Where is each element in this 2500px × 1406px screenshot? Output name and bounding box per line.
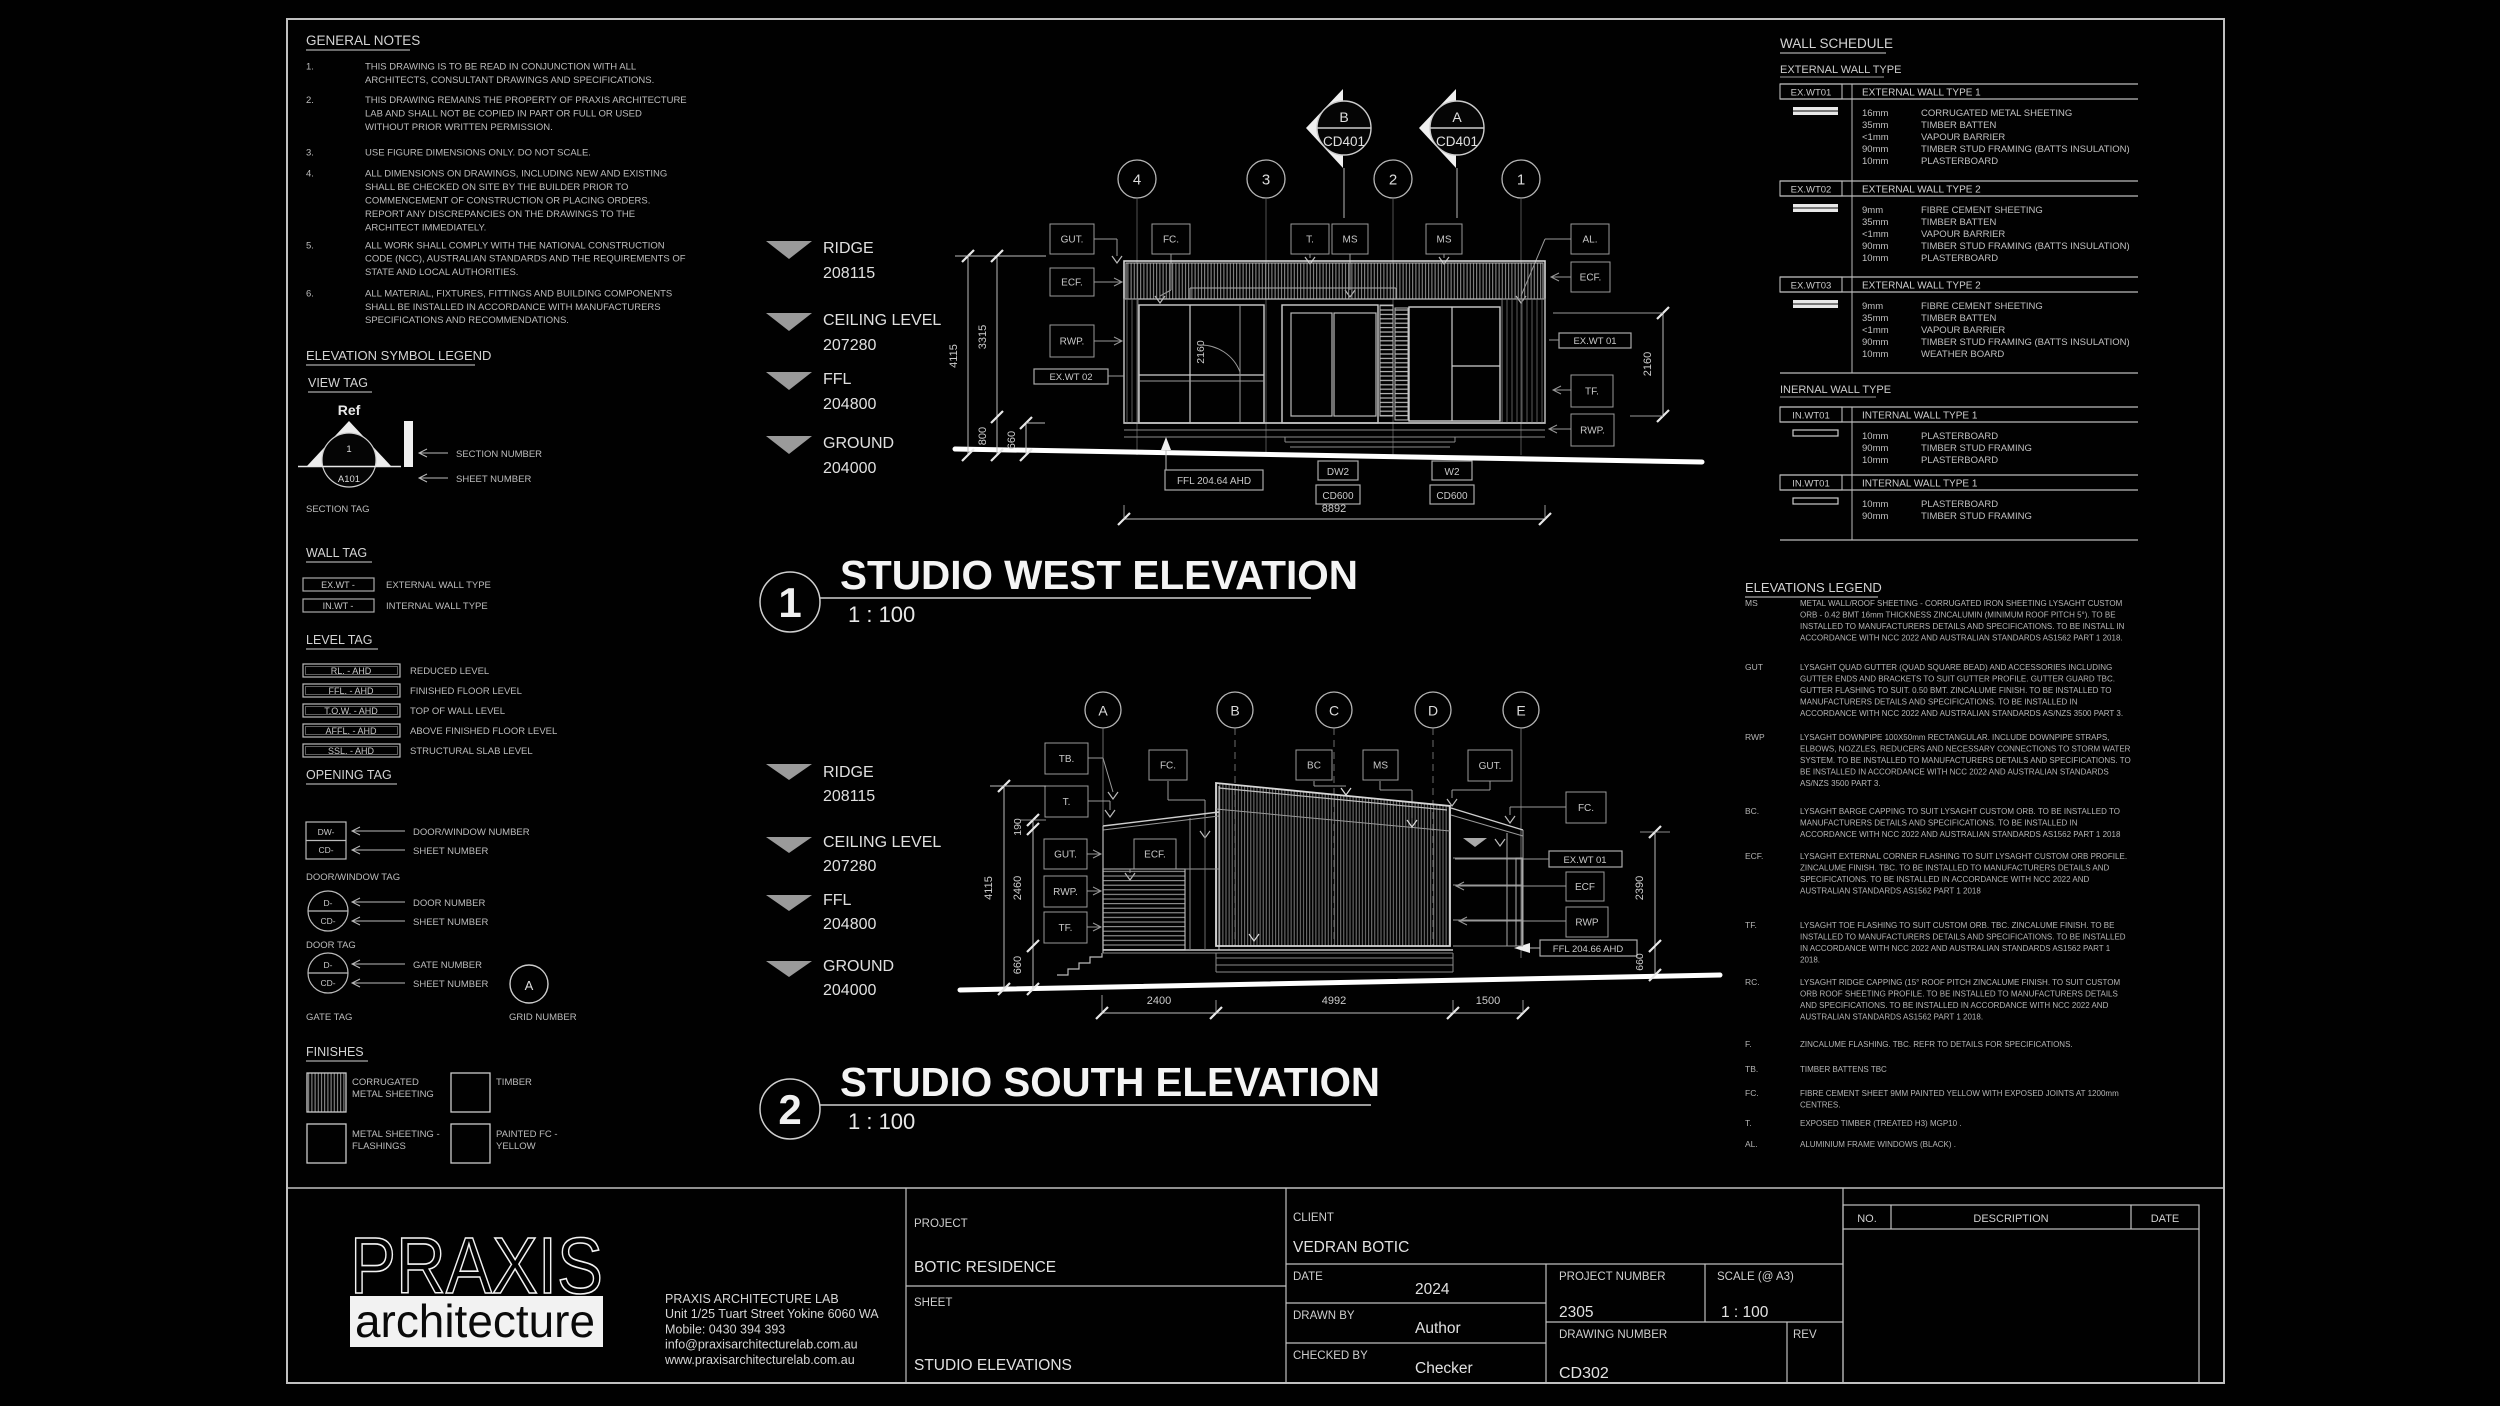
svg-text:SPECIFICATIONS AND RECOMMENDAT: SPECIFICATIONS AND RECOMMENDATIONS.: [365, 315, 569, 326]
svg-text:RWP: RWP: [1745, 732, 1765, 742]
svg-text:EX.WT01: EX.WT01: [1791, 88, 1832, 99]
svg-text:REV: REV: [1793, 1329, 1817, 1341]
svg-text:EXTERNAL WALL TYPE 1: EXTERNAL WALL TYPE 1: [1862, 88, 1981, 99]
svg-text:90mm: 90mm: [1862, 241, 1888, 252]
svg-text:CENTRES.: CENTRES.: [1800, 1101, 1840, 1110]
svg-text:EXTERNAL WALL TYPE 2: EXTERNAL WALL TYPE 2: [1862, 281, 1981, 292]
svg-text:4115: 4115: [948, 344, 960, 368]
svg-text:LYSAGHT TOE FLASHING TO SUIT C: LYSAGHT TOE FLASHING TO SUIT CUSTOM ORB.…: [1800, 921, 2114, 930]
svg-text:www.praxisarchitecturelab.com.: www.praxisarchitecturelab.com.au: [664, 1353, 855, 1367]
svg-text:CD-: CD-: [320, 916, 335, 926]
svg-text:LYSAGHT EXTERNAL CORNER FLASHI: LYSAGHT EXTERNAL CORNER FLASHING TO SUIT…: [1800, 852, 2127, 861]
svg-text:204800: 204800: [823, 396, 876, 413]
svg-text:90mm: 90mm: [1862, 144, 1888, 155]
svg-text:2: 2: [778, 1086, 801, 1133]
svg-text:RIDGE: RIDGE: [823, 240, 874, 257]
svg-text:LAB AND SHALL NOT BE COPIED IN: LAB AND SHALL NOT BE COPIED IN PART OR F…: [365, 108, 642, 119]
svg-text:FC.: FC.: [1160, 761, 1176, 772]
svg-text:COMMENCEMENT OF CONSTRUCTION O: COMMENCEMENT OF CONSTRUCTION OR PLACING …: [365, 196, 650, 207]
svg-text:INTERNAL WALL TYPE 1: INTERNAL WALL TYPE 1: [1862, 411, 1978, 422]
svg-text:660: 660: [1012, 956, 1024, 974]
svg-text:IN.WT01: IN.WT01: [1792, 411, 1829, 422]
svg-text:<1mm: <1mm: [1862, 325, 1889, 336]
svg-text:STUDIO WEST ELEVATION: STUDIO WEST ELEVATION: [840, 552, 1358, 598]
svg-text:WALL SCHEDULE: WALL SCHEDULE: [1780, 36, 1893, 51]
svg-text:FIBRE CEMENT SHEETING: FIBRE CEMENT SHEETING: [1921, 301, 2043, 312]
svg-text:Unit 1/25 Tuart Street Yokine: Unit 1/25 Tuart Street Yokine 6060 WA: [665, 1307, 879, 1321]
svg-text:D: D: [1428, 703, 1438, 719]
svg-text:FFL. - AHD: FFL. - AHD: [328, 686, 374, 696]
svg-text:DATE: DATE: [2151, 1213, 2180, 1225]
svg-text:9mm: 9mm: [1862, 301, 1883, 312]
svg-text:CEILING LEVEL: CEILING LEVEL: [823, 834, 941, 851]
svg-text:10mm: 10mm: [1862, 253, 1888, 264]
svg-text:STUDIO ELEVATIONS: STUDIO ELEVATIONS: [914, 1357, 1072, 1374]
svg-text:TIMBER BATTENS TBC: TIMBER BATTENS TBC: [1800, 1065, 1887, 1074]
svg-text:35mm: 35mm: [1862, 120, 1888, 131]
svg-text:10mm: 10mm: [1862, 349, 1888, 360]
svg-text:VAPOUR BARRIER: VAPOUR BARRIER: [1921, 229, 2005, 240]
svg-text:ACCORDANCE WITH NCC 2022 AND A: ACCORDANCE WITH NCC 2022 AND AUSTRALIAN …: [1800, 830, 2121, 839]
svg-text:LYSAGHT RIDGE CAPPING (15° ROO: LYSAGHT RIDGE CAPPING (15° ROOF PITCH ZI…: [1800, 978, 2120, 987]
svg-text:AL.: AL.: [1582, 235, 1597, 246]
svg-text:IN.WT01: IN.WT01: [1792, 479, 1829, 490]
svg-text:LYSAGHT QUAD GUTTER (QUAD SQUA: LYSAGHT QUAD GUTTER (QUAD SQUARE BEAD) A…: [1800, 663, 2112, 672]
svg-text:FIBRE CEMENT SHEETING: FIBRE CEMENT SHEETING: [1921, 205, 2043, 216]
svg-text:ORB ROOF SHEETING PROFILE. TO: ORB ROOF SHEETING PROFILE. TO BE INSTALL…: [1800, 990, 2118, 999]
svg-text:FINISHES: FINISHES: [306, 1045, 364, 1059]
svg-text:AS/NZS 3500 PART 3.: AS/NZS 3500 PART 3.: [1800, 779, 1880, 788]
svg-text:208115: 208115: [823, 265, 875, 282]
svg-text:204000: 204000: [823, 460, 876, 477]
svg-text:EX.WT 02: EX.WT 02: [1049, 372, 1092, 383]
svg-text:TIMBER BATTEN: TIMBER BATTEN: [1921, 313, 1996, 324]
svg-text:TIMBER STUD FRAMING: TIMBER STUD FRAMING: [1921, 443, 2032, 454]
svg-text:204800: 204800: [823, 916, 876, 933]
svg-text:CD302: CD302: [1559, 1365, 1609, 1382]
svg-text:REPORT ANY DISCREPANCIES ON TH: REPORT ANY DISCREPANCIES ON THE DRAWINGS…: [365, 209, 635, 220]
svg-text:T.: T.: [1063, 797, 1071, 808]
svg-text:TOP OF WALL LEVEL: TOP OF WALL LEVEL: [410, 706, 505, 717]
svg-text:BOTIC RESIDENCE: BOTIC RESIDENCE: [914, 1259, 1056, 1276]
svg-text:TIMBER BATTEN: TIMBER BATTEN: [1921, 217, 1996, 228]
svg-text:2400: 2400: [1147, 995, 1171, 1007]
svg-text:1 : 100: 1 : 100: [848, 1109, 915, 1134]
svg-text:RWP: RWP: [1575, 918, 1598, 929]
svg-text:VAPOUR BARRIER: VAPOUR BARRIER: [1921, 132, 2005, 143]
svg-text:VEDRAN BOTIC: VEDRAN BOTIC: [1293, 1239, 1409, 1256]
svg-text:BC: BC: [1307, 761, 1321, 772]
svg-text:Author: Author: [1415, 1320, 1461, 1337]
svg-text:ARCHITECTS, CONSULTANT DRAWING: ARCHITECTS, CONSULTANT DRAWINGS AND SPEC…: [365, 75, 654, 86]
svg-text:3.: 3.: [306, 148, 314, 159]
svg-text:2305: 2305: [1559, 1304, 1593, 1321]
svg-text:EX.WT 01: EX.WT 01: [1573, 336, 1616, 347]
svg-text:PLASTERBOARD: PLASTERBOARD: [1921, 253, 1998, 264]
svg-text:TIMBER: TIMBER: [496, 1077, 532, 1088]
svg-text:4992: 4992: [1322, 995, 1346, 1007]
svg-text:WALL TAG: WALL TAG: [306, 546, 367, 560]
svg-text:GATE TAG: GATE TAG: [306, 1012, 352, 1023]
svg-text:MS: MS: [1437, 235, 1452, 246]
svg-text:SHEET NUMBER: SHEET NUMBER: [413, 979, 488, 990]
svg-text:PAINTED FC -: PAINTED FC -: [496, 1129, 558, 1140]
svg-text:STATE AND LOCAL AUTHORITIES.: STATE AND LOCAL AUTHORITIES.: [365, 267, 518, 278]
svg-text:RWP.: RWP.: [1053, 887, 1078, 898]
svg-text:CD401: CD401: [1323, 134, 1365, 149]
svg-text:CD-: CD-: [318, 845, 333, 855]
svg-text:207280: 207280: [823, 337, 876, 354]
svg-text:2160: 2160: [1195, 340, 1207, 364]
svg-text:GATE NUMBER: GATE NUMBER: [413, 960, 482, 971]
svg-text:STRUCTURAL SLAB LEVEL: STRUCTURAL SLAB LEVEL: [410, 746, 533, 757]
svg-text:CODE (NCC), AUSTRALIAN STANDAR: CODE (NCC), AUSTRALIAN STANDARDS AND THE…: [365, 254, 686, 265]
svg-text:FC.: FC.: [1163, 235, 1179, 246]
svg-text:DOOR TAG: DOOR TAG: [306, 940, 356, 951]
svg-text:TIMBER STUD FRAMING: TIMBER STUD FRAMING: [1921, 511, 2032, 522]
svg-text:BC.: BC.: [1745, 806, 1759, 816]
svg-text:USE FIGURE DIMENSIONS ONLY. DO: USE FIGURE DIMENSIONS ONLY. DO NOT SCALE…: [365, 148, 591, 159]
svg-text:architecture: architecture: [355, 1295, 595, 1347]
svg-text:ACCORDANCE WITH NCC 2022 AND A: ACCORDANCE WITH NCC 2022 AND AUSTRALIAN …: [1800, 709, 2123, 718]
svg-text:W2: W2: [1445, 467, 1460, 478]
svg-text:CORRUGATED METAL SHEETING: CORRUGATED METAL SHEETING: [1921, 108, 2072, 119]
svg-text:1: 1: [346, 444, 351, 455]
svg-text:16mm: 16mm: [1862, 108, 1888, 119]
svg-text:ELBOWS, NOZZLES, REDUCERS AND: ELBOWS, NOZZLES, REDUCERS AND NECESSARY …: [1800, 745, 2131, 754]
svg-text:SSL. - AHD: SSL. - AHD: [328, 746, 375, 756]
svg-text:INTERNAL WALL TYPE 1: INTERNAL WALL TYPE 1: [1862, 479, 1978, 490]
svg-text:T.: T.: [1745, 1118, 1752, 1128]
svg-text:1: 1: [778, 579, 801, 626]
svg-text:THIS DRAWING IS TO BE READ IN: THIS DRAWING IS TO BE READ IN CONJUNCTIO…: [365, 62, 636, 73]
svg-text:THIS DRAWING REMAINS THE PROPE: THIS DRAWING REMAINS THE PROPERTY OF PRA…: [365, 95, 687, 106]
svg-text:LYSAGHT BARGE CAPPING TO SUIT: LYSAGHT BARGE CAPPING TO SUIT LYSAGHT CU…: [1800, 807, 2120, 816]
svg-text:4115: 4115: [983, 876, 995, 900]
svg-text:A101: A101: [338, 474, 360, 485]
svg-text:90mm: 90mm: [1862, 337, 1888, 348]
svg-text:T.O.W. - AHD: T.O.W. - AHD: [324, 706, 378, 716]
svg-text:WITHOUT PRIOR WRITTEN PERMISSI: WITHOUT PRIOR WRITTEN PERMISSION.: [365, 122, 553, 133]
svg-text:D-: D-: [324, 960, 333, 970]
svg-text:10mm: 10mm: [1862, 455, 1888, 466]
svg-text:3315: 3315: [977, 325, 989, 349]
svg-text:2.: 2.: [306, 95, 314, 106]
svg-text:A: A: [1452, 109, 1462, 125]
svg-text:INSTALLED TO MANUFACTURERS DET: INSTALLED TO MANUFACTURERS DETAILS AND S…: [1800, 622, 2125, 631]
svg-text:DRAWN BY: DRAWN BY: [1293, 1310, 1355, 1322]
svg-text:204000: 204000: [823, 982, 876, 999]
svg-text:AUSTRALIAN STANDARDS AS1562 PA: AUSTRALIAN STANDARDS AS1562 PART 1 2018: [1800, 887, 1981, 896]
svg-text:TIMBER STUD FRAMING (BATTS INS: TIMBER STUD FRAMING (BATTS INSULATION): [1921, 144, 2130, 155]
svg-text:800: 800: [977, 427, 989, 445]
svg-text:BE INSTALLED IN ACCORDANCE WIT: BE INSTALLED IN ACCORDANCE WITH NCC 2022…: [1800, 768, 2109, 777]
svg-text:10mm: 10mm: [1862, 499, 1888, 510]
svg-text:9mm: 9mm: [1862, 205, 1883, 216]
svg-text:TIMBER BATTEN: TIMBER BATTEN: [1921, 120, 1996, 131]
svg-text:MANUFACTURERS DETAILS AND SPEC: MANUFACTURERS DETAILS AND SPECIFICATIONS…: [1800, 819, 2078, 828]
svg-text:GUTTER FLASHING TO SUIT. 0.50: GUTTER FLASHING TO SUIT. 0.50 BMT. ZINCA…: [1800, 686, 2111, 695]
svg-text:2024: 2024: [1415, 1281, 1450, 1298]
svg-text:MS: MS: [1745, 598, 1758, 608]
svg-text:B: B: [1230, 703, 1239, 719]
svg-text:D-: D-: [324, 898, 333, 908]
svg-text:EXPOSED TIMBER (TREATED H3) MG: EXPOSED TIMBER (TREATED H3) MGP10 .: [1800, 1119, 1962, 1128]
svg-text:35mm: 35mm: [1862, 313, 1888, 324]
svg-text:GROUND: GROUND: [823, 435, 894, 452]
svg-text:SECTION NUMBER: SECTION NUMBER: [456, 449, 542, 460]
svg-text:EX.WT -: EX.WT -: [321, 580, 355, 590]
svg-text:info@praxisarchitecturelab.com: info@praxisarchitecturelab.com.au: [665, 1338, 858, 1352]
svg-text:EX.WT03: EX.WT03: [1791, 281, 1832, 292]
svg-text:SPECIFICATIONS. TO BE INSTALLE: SPECIFICATIONS. TO BE INSTALLED IN ACCOR…: [1800, 875, 2089, 884]
svg-text:208115: 208115: [823, 788, 875, 805]
svg-text:SECTION TAG: SECTION TAG: [306, 504, 370, 515]
svg-text:FIBRE CEMENT SHEET 9MM PAINTED: FIBRE CEMENT SHEET 9MM PAINTED YELLOW WI…: [1800, 1089, 2119, 1098]
svg-text:1 : 100: 1 : 100: [848, 602, 915, 627]
svg-text:5.: 5.: [306, 240, 314, 251]
svg-text:DW-: DW-: [318, 827, 335, 837]
svg-text:GUTTER ENDS AND BRACKETS TO SU: GUTTER ENDS AND BRACKETS TO SUIT GUTTER …: [1800, 675, 2115, 684]
svg-text:OPENING TAG: OPENING TAG: [306, 768, 392, 782]
svg-text:2018.: 2018.: [1800, 956, 1820, 965]
svg-text:GRID NUMBER: GRID NUMBER: [509, 1012, 577, 1023]
svg-text:PROJECT NUMBER: PROJECT NUMBER: [1559, 1271, 1666, 1283]
svg-text:90mm: 90mm: [1862, 511, 1888, 522]
svg-text:TB.: TB.: [1745, 1064, 1758, 1074]
svg-text:ALL MATERIAL, FIXTURES, FITTIN: ALL MATERIAL, FIXTURES, FITTINGS AND BUI…: [365, 288, 672, 299]
svg-text:ALUMINIUM FRAME WINDOWS (BLACK: ALUMINIUM FRAME WINDOWS (BLACK) .: [1800, 1140, 1956, 1149]
svg-text:2460: 2460: [1012, 876, 1024, 900]
svg-text:FFL: FFL: [823, 371, 852, 388]
svg-text:GUT: GUT: [1745, 662, 1763, 672]
svg-text:ECF.: ECF.: [1580, 273, 1602, 284]
svg-text:TIMBER STUD FRAMING (BATTS INS: TIMBER STUD FRAMING (BATTS INSULATION): [1921, 337, 2130, 348]
svg-text:660: 660: [1634, 953, 1646, 971]
svg-text:RWP.: RWP.: [1060, 337, 1085, 348]
svg-text:ECF.: ECF.: [1745, 851, 1763, 861]
svg-text:PRAXIS ARCHITECTURE LAB: PRAXIS ARCHITECTURE LAB: [665, 1292, 839, 1306]
svg-text:C: C: [1329, 703, 1339, 719]
svg-text:10mm: 10mm: [1862, 156, 1888, 167]
svg-text:DOOR NUMBER: DOOR NUMBER: [413, 898, 485, 909]
svg-text:EX.WT 01: EX.WT 01: [1563, 855, 1606, 866]
svg-text:GENERAL NOTES: GENERAL NOTES: [306, 33, 420, 48]
svg-text:VIEW TAG: VIEW TAG: [308, 376, 368, 390]
svg-text:ABOVE FINISHED FLOOR LEVEL: ABOVE FINISHED FLOOR LEVEL: [410, 726, 557, 737]
svg-text:GROUND: GROUND: [823, 958, 894, 975]
svg-text:MS: MS: [1373, 761, 1388, 772]
svg-text:PROJECT: PROJECT: [914, 1218, 968, 1230]
svg-text:LEVEL TAG: LEVEL TAG: [306, 633, 372, 647]
svg-text:DOOR/WINDOW NUMBER: DOOR/WINDOW NUMBER: [413, 827, 530, 838]
svg-text:INSTALLED TO MANUFACTURERS DET: INSTALLED TO MANUFACTURERS DETAILS AND S…: [1800, 933, 2126, 942]
svg-text:TIMBER STUD FRAMING (BATTS INS: TIMBER STUD FRAMING (BATTS INSULATION): [1921, 241, 2130, 252]
svg-text:SHEET NUMBER: SHEET NUMBER: [413, 846, 488, 857]
svg-text:DOOR/WINDOW TAG: DOOR/WINDOW TAG: [306, 872, 400, 883]
svg-text:RC.: RC.: [1745, 977, 1760, 987]
svg-text:90mm: 90mm: [1862, 443, 1888, 454]
svg-text:SHEET NUMBER: SHEET NUMBER: [413, 917, 488, 928]
svg-text:660: 660: [1006, 431, 1018, 449]
svg-text:PLASTERBOARD: PLASTERBOARD: [1921, 455, 1998, 466]
svg-text:190: 190: [1012, 818, 1024, 836]
svg-text:DRAWING NUMBER: DRAWING NUMBER: [1559, 1329, 1667, 1341]
svg-text:EXTERNAL WALL TYPE: EXTERNAL WALL TYPE: [386, 580, 491, 591]
svg-text:EXTERNAL WALL TYPE: EXTERNAL WALL TYPE: [1780, 64, 1901, 76]
svg-text:SHEET NUMBER: SHEET NUMBER: [456, 474, 531, 485]
svg-text:TF.: TF.: [1059, 923, 1073, 934]
svg-text:CD600: CD600: [1436, 491, 1468, 502]
svg-text:SHALL BE CHECKED ON SITE BY TH: SHALL BE CHECKED ON SITE BY THE BUILDER …: [365, 182, 628, 193]
svg-text:4.: 4.: [306, 169, 314, 180]
svg-text:E: E: [1516, 703, 1525, 719]
svg-text:ELEVATIONS LEGEND: ELEVATIONS LEGEND: [1745, 580, 1882, 595]
svg-text:SYSTEM. TO BE INSTALLED TO MAN: SYSTEM. TO BE INSTALLED TO MANUFACTURERS…: [1800, 756, 2131, 765]
svg-text:ECF: ECF: [1575, 882, 1595, 893]
svg-text:EX.WT02: EX.WT02: [1791, 185, 1832, 196]
svg-text:F.: F.: [1745, 1039, 1752, 1049]
svg-text:AL.: AL.: [1745, 1139, 1758, 1149]
svg-text:PLASTERBOARD: PLASTERBOARD: [1921, 431, 1998, 442]
svg-text:METAL SHEETING: METAL SHEETING: [352, 1089, 434, 1100]
svg-text:DW2: DW2: [1327, 467, 1350, 478]
svg-text:GUT.: GUT.: [1479, 761, 1502, 772]
svg-text:TB.: TB.: [1059, 754, 1075, 765]
svg-text:1 : 100: 1 : 100: [1721, 1304, 1769, 1321]
svg-text:INERNAL WALL TYPE: INERNAL WALL TYPE: [1780, 384, 1891, 396]
svg-text:2160: 2160: [1642, 352, 1654, 376]
svg-text:ECF.: ECF.: [1144, 850, 1166, 861]
svg-text:LYSAGHT DOWNPIPE 100X50mm RECT: LYSAGHT DOWNPIPE 100X50mm RECTANGULAR. I…: [1800, 733, 2109, 742]
svg-text:ECF.: ECF.: [1061, 278, 1083, 289]
svg-text:Checker: Checker: [1415, 1360, 1473, 1377]
svg-text:ZINCALUME FINISH. TBC. TO BE I: ZINCALUME FINISH. TBC. TO BE INSTALLED T…: [1800, 864, 2109, 873]
svg-text:A: A: [525, 978, 534, 993]
svg-text:NO.: NO.: [1857, 1213, 1877, 1225]
svg-text:10mm: 10mm: [1862, 431, 1888, 442]
svg-text:MANUFACTURERS DETAILS AND SPEC: MANUFACTURERS DETAILS AND SPECIFICATIONS…: [1800, 698, 2078, 707]
svg-text:6.: 6.: [306, 288, 314, 299]
svg-text:AND SPECIFICATIONS. TO BE INST: AND SPECIFICATIONS. TO BE INSTALLED IN A…: [1800, 1001, 2109, 1010]
svg-text:<1mm: <1mm: [1862, 229, 1889, 240]
svg-text:35mm: 35mm: [1862, 217, 1888, 228]
svg-text:STUDIO SOUTH ELEVATION: STUDIO SOUTH ELEVATION: [840, 1059, 1380, 1105]
svg-text:DATE: DATE: [1293, 1271, 1323, 1283]
svg-text:ARCHITECT IMMEDIATELY.: ARCHITECT IMMEDIATELY.: [365, 222, 486, 233]
svg-text:207280: 207280: [823, 858, 876, 875]
svg-text:<1mm: <1mm: [1862, 132, 1889, 143]
svg-text:8892: 8892: [1322, 503, 1346, 515]
svg-text:RIDGE: RIDGE: [823, 764, 874, 781]
svg-text:ALL DIMENSIONS ON DRAWINGS, IN: ALL DIMENSIONS ON DRAWINGS, INCLUDING NE…: [365, 169, 667, 180]
svg-text:PLASTERBOARD: PLASTERBOARD: [1921, 156, 1998, 167]
svg-text:YELLOW: YELLOW: [496, 1141, 536, 1152]
svg-text:AFFL. - AHD: AFFL. - AHD: [325, 726, 377, 736]
svg-text:CHECKED BY: CHECKED BY: [1293, 1350, 1368, 1362]
svg-text:AUSTRALIAN STANDARDS AS1562 PA: AUSTRALIAN STANDARDS AS1562 PART 1 2018.: [1800, 1013, 1983, 1022]
svg-text:VAPOUR BARRIER: VAPOUR BARRIER: [1921, 325, 2005, 336]
svg-text:TF.: TF.: [1585, 387, 1599, 398]
svg-text:Mobile: 0430 394 393: Mobile: 0430 394 393: [665, 1322, 785, 1336]
svg-text:1500: 1500: [1476, 995, 1500, 1007]
svg-text:FFL: FFL: [823, 892, 852, 909]
svg-text:2390: 2390: [1634, 876, 1646, 900]
svg-text:CD600: CD600: [1322, 491, 1354, 502]
svg-text:IN ACCORDANCE WITH NCC 2022 AN: IN ACCORDANCE WITH NCC 2022 AND AUSTRALI…: [1800, 944, 2111, 953]
svg-text:CORRUGATED: CORRUGATED: [352, 1077, 419, 1088]
svg-text:DESCRIPTION: DESCRIPTION: [1973, 1213, 2048, 1225]
svg-text:RL. - AHD: RL. - AHD: [331, 666, 372, 676]
svg-text:ALL WORK SHALL COMPLY WITH THE: ALL WORK SHALL COMPLY WITH THE NATIONAL …: [365, 240, 665, 251]
svg-text:REDUCED LEVEL: REDUCED LEVEL: [410, 666, 489, 677]
svg-text:SHEET: SHEET: [914, 1297, 952, 1309]
svg-text:FC.: FC.: [1578, 803, 1594, 814]
svg-text:SHALL BE INSTALLED IN ACCORDAN: SHALL BE INSTALLED IN ACCORDANCE WITH MA…: [365, 302, 661, 313]
svg-text:CD401: CD401: [1436, 134, 1478, 149]
svg-text:FC.: FC.: [1745, 1088, 1759, 1098]
svg-text:IN.WT -: IN.WT -: [323, 601, 354, 611]
svg-text:EXTERNAL WALL TYPE 2: EXTERNAL WALL TYPE 2: [1862, 185, 1981, 196]
svg-text:MS: MS: [1343, 235, 1358, 246]
svg-text:ZINCALUME FLASHING. TBC. REFR: ZINCALUME FLASHING. TBC. REFR TO DETAILS…: [1800, 1040, 2073, 1049]
svg-text:METAL SHEETING -: METAL SHEETING -: [352, 1129, 440, 1140]
svg-text:GUT.: GUT.: [1061, 235, 1084, 246]
svg-text:1.: 1.: [306, 62, 314, 73]
svg-text:ELEVATION SYMBOL LEGEND: ELEVATION SYMBOL LEGEND: [306, 348, 491, 363]
svg-text:GUT.: GUT.: [1054, 850, 1077, 861]
svg-text:WEATHER BOARD: WEATHER BOARD: [1921, 349, 2004, 360]
svg-text:PLASTERBOARD: PLASTERBOARD: [1921, 499, 1998, 510]
svg-text:ORB - 0.42 BMT 16mm THICKNESS: ORB - 0.42 BMT 16mm THICKNESS ZINCALUMIN…: [1800, 611, 2116, 620]
svg-text:4: 4: [1133, 172, 1141, 189]
svg-text:1: 1: [1517, 172, 1525, 189]
svg-text:3: 3: [1262, 172, 1270, 189]
svg-text:SCALE (@ A3): SCALE (@ A3): [1717, 1271, 1794, 1283]
svg-text:FFL 204.66 AHD: FFL 204.66 AHD: [1553, 944, 1624, 955]
svg-text:2: 2: [1389, 172, 1397, 189]
svg-text:B: B: [1339, 109, 1348, 125]
svg-text:FINISHED FLOOR LEVEL: FINISHED FLOOR LEVEL: [410, 686, 522, 697]
svg-text:RWP.: RWP.: [1580, 426, 1605, 437]
svg-text:CD-: CD-: [320, 978, 335, 988]
svg-text:Ref: Ref: [338, 402, 361, 418]
svg-text:CEILING LEVEL: CEILING LEVEL: [823, 312, 941, 329]
svg-text:INTERNAL WALL TYPE: INTERNAL WALL TYPE: [386, 601, 488, 612]
svg-text:CLIENT: CLIENT: [1293, 1212, 1334, 1224]
svg-text:A: A: [1098, 703, 1108, 719]
svg-text:TF.: TF.: [1745, 920, 1757, 930]
svg-text:ACCORDANCE WITH NCC 2022 AND A: ACCORDANCE WITH NCC 2022 AND AUSTRALIAN …: [1800, 634, 2123, 643]
svg-text:FFL 204.64 AHD: FFL 204.64 AHD: [1177, 476, 1251, 487]
svg-text:METAL WALL/ROOF SHEETING - COR: METAL WALL/ROOF SHEETING - CORRUGATED IR…: [1800, 599, 2123, 608]
svg-text:FLASHINGS: FLASHINGS: [352, 1141, 406, 1152]
svg-text:T.: T.: [1306, 235, 1314, 246]
